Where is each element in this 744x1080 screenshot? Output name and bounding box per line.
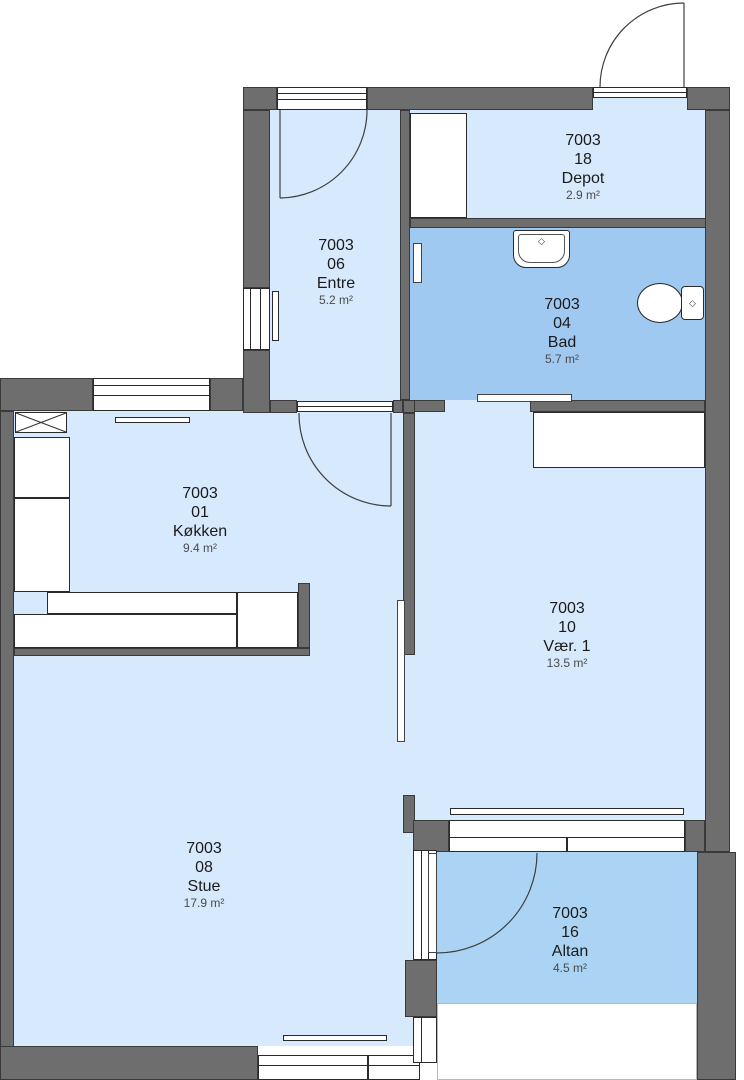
room-number: 10 [543,618,590,637]
wall-segment [400,110,410,400]
wall-segment [243,350,270,413]
wardrobe [533,412,705,468]
sliding-door-leaf-entre-bad [413,243,422,283]
room-building: 7003 [562,131,605,150]
room-area: 13.5 m² [543,656,590,671]
room-building: 7003 [173,484,227,503]
room-building: 7003 [317,236,355,255]
room-number: 01 [173,503,227,522]
toilet-tank-icon: ◇ [681,286,704,320]
room-label-entre: 7003 06 Entre 5.2 m² [317,236,355,308]
window-stue-right-lower [413,1017,437,1063]
room-label-koekken: 7003 01 Køkken 9.4 m² [173,484,227,556]
toilet-bowl-icon [637,283,683,323]
wall-segment [413,820,449,852]
ventilation-shaft [15,412,67,433]
window-stue-bottom [258,1055,420,1080]
wall-segment [405,960,437,1017]
wall-segment [705,110,730,852]
wall-segment [687,87,730,110]
room-name: Stue [184,877,225,896]
room-number: 08 [184,858,225,877]
room-area: 5.2 m² [317,293,355,308]
room-label-depot: 7003 18 Depot 2.9 m² [562,131,605,203]
sink-icon: ◇ [513,230,570,268]
window-koekken-top [93,378,210,411]
room-building: 7003 [543,599,590,618]
window-entre-left [243,288,270,350]
wall-segment [210,378,243,411]
kitchen-counter [14,437,70,498]
window-entre-top [277,87,367,110]
window-vaer1-bottom [449,820,685,852]
floor-plan-canvas: ◇ ◇ 7003 18 Depot 2.9 m² 7003 06 Entre 5… [0,0,744,1080]
room-label-stue: 7003 08 Stue 17.9 m² [184,839,225,911]
radiator-koekken [115,417,190,423]
room-number: 18 [562,150,605,169]
room-building: 7003 [184,839,225,858]
sliding-door-leaf-bad [477,394,572,402]
wall-segment-kitchen-stub [298,583,310,648]
room-area: 9.4 m² [173,541,227,556]
wall-segment [685,820,705,852]
kitchen-counter [237,592,298,648]
room-building: 7003 [544,295,580,314]
kitchen-counter [14,614,237,648]
room-area: 2.9 m² [562,188,605,203]
wall-segment [243,110,270,288]
wall-segment [393,400,403,413]
wall-segment [410,218,730,228]
wall-segment [0,1046,258,1080]
room-label-bad: 7003 04 Bad 5.7 m² [544,295,580,367]
room-number: 04 [544,314,580,333]
room-floor-depot-doorsill [593,98,687,110]
sliding-door-leaf-vaer1 [397,600,405,742]
door-arc-depot [600,3,684,87]
kitchen-counter [14,498,70,592]
room-name: Bad [544,333,580,352]
wall-segment [243,87,277,110]
room-name: Entre [317,274,355,293]
room-area: 17.9 m² [184,896,225,911]
room-building: 7003 [552,904,588,923]
doorframe-depot [593,87,687,98]
room-name: Køkken [173,522,227,541]
wall-segment [367,87,593,110]
room-name: Altan [552,942,588,961]
doorframe-koekken [297,401,393,412]
wall-segment-balcony [697,852,736,1080]
kitchen-counter [47,592,237,614]
wall-segment [0,378,93,411]
closet [410,113,467,218]
room-area: 5.7 m² [544,352,580,367]
radiator-stue [283,1035,387,1041]
room-number: 06 [317,255,355,274]
room-label-altan: 7003 16 Altan 4.5 m² [552,904,588,976]
wall-segment [412,400,445,412]
wall-segment-kitchen-halfwall [14,648,310,656]
room-label-vaer1: 7003 10 Vær. 1 13.5 m² [543,599,590,671]
radiator-entre [272,291,279,341]
room-name: Depot [562,169,605,188]
room-area: 4.5 m² [552,961,588,976]
wall-segment [0,411,14,1080]
door-leaf-altan [428,853,437,953]
wall-segment [403,400,415,413]
balcony-lower-deck [437,1003,697,1080]
radiator-vaer1 [450,808,684,815]
room-name: Vær. 1 [543,637,590,656]
wall-segment [270,400,297,413]
room-number: 16 [552,923,588,942]
